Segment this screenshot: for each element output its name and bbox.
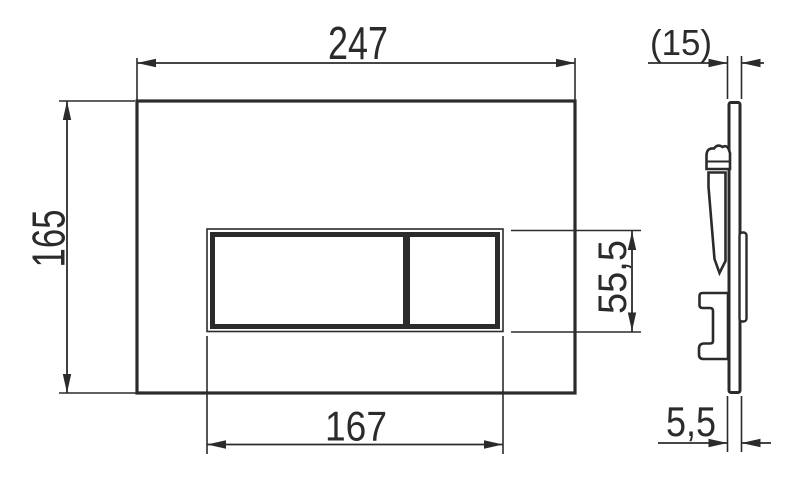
technical-drawing-flush-plate: 247 165 167 55,5 (15) [0,0,800,475]
dim-label-plate-width: 247 [328,17,388,69]
button-assembly [207,229,503,332]
dim-plate-width: 247 [137,17,575,100]
side-view [699,103,747,393]
arrowhead-up [63,101,71,120]
side-clip-hook [707,146,731,169]
dim-label-plate-thickness: 5,5 [666,398,716,445]
front-view [137,101,575,393]
arrowhead-right [556,59,575,67]
side-clip-bracket [699,293,728,359]
arrowhead-down [628,313,636,332]
arrowhead-down [63,374,71,393]
dim-plate-thickness: 5,5 [658,396,771,452]
dim-label-button-height: 55,5 [591,240,635,314]
dim-label-button-width: 167 [325,403,387,450]
arrowhead-left [742,59,761,67]
drawing-svg: 247 165 167 55,5 (15) [0,0,800,475]
dim-plate-height: 165 [23,101,138,393]
arrowhead-left [207,440,226,448]
side-clip-spring-arm [709,173,726,274]
dim-label-depth-overall: (15) [650,22,712,63]
arrowhead-right [484,440,503,448]
dim-label-plate-height: 165 [23,210,75,268]
arrowhead-left [137,59,156,67]
arrowhead-left [742,439,761,447]
button-frame [213,235,498,327]
side-button-protrusion [740,233,747,322]
dim-depth-overall: (15) [648,22,764,99]
